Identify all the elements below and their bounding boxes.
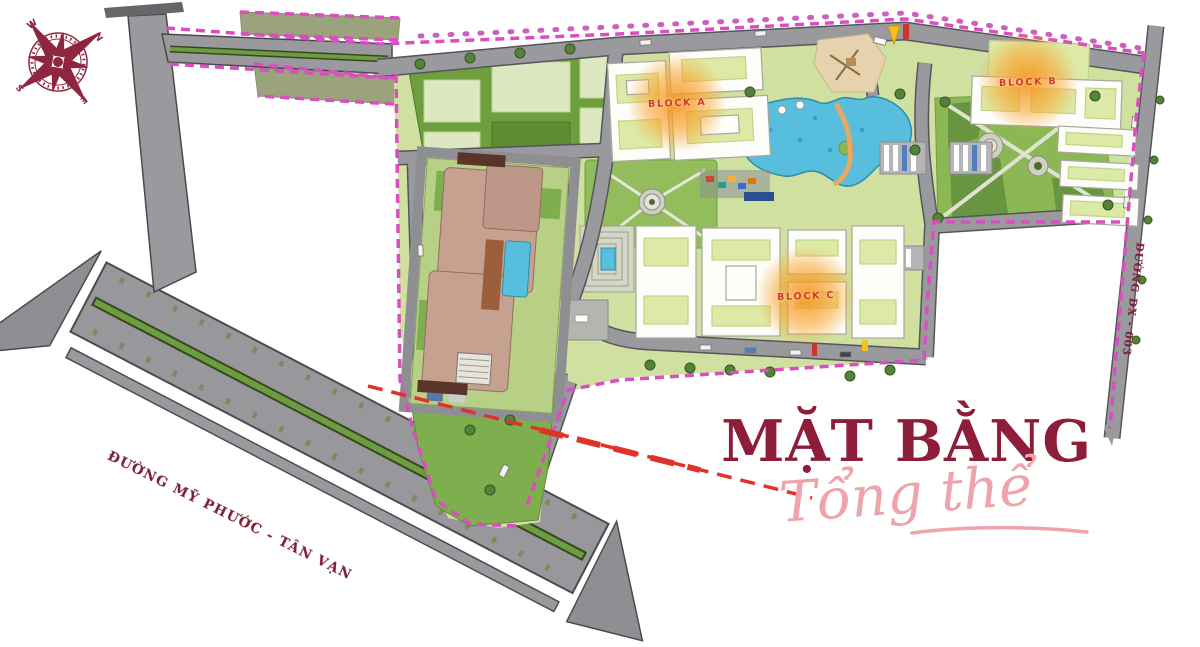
compass-n-label: N (91, 32, 104, 44)
block-c-label: BLOCK C (754, 244, 858, 348)
block-b-label: BLOCK B (976, 30, 1080, 134)
mixed-use-parcel (404, 150, 576, 418)
plan-title: MẶT BẰNG Tổng thể (721, 412, 1092, 539)
site-masterplan: N E S W ĐƯỜNG MỸ PHƯỚC - TÂN VẠN ĐƯỜNG D… (0, 0, 1200, 647)
access-road-west (162, 12, 400, 104)
block-a-label: BLOCK A (625, 51, 729, 155)
compass-rose: N E S W (0, 0, 128, 128)
event-plaza (700, 170, 774, 201)
